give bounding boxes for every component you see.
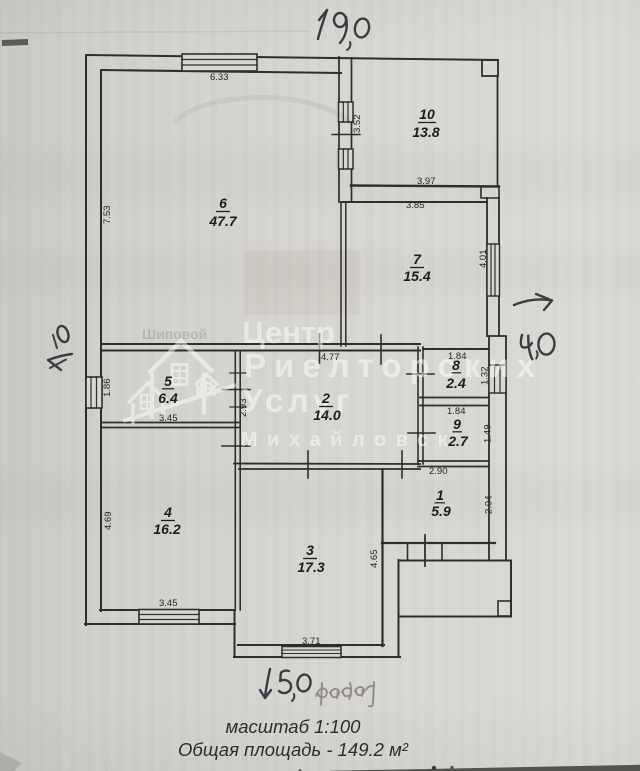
svg-text:2.90: 2.90 [429,466,448,477]
svg-text:3: 3 [306,542,314,558]
svg-text:10: 10 [419,106,435,122]
svg-text:47.7: 47.7 [208,213,237,229]
svg-text:Общая площадь - 149.2 м²: Общая площадь - 149.2 м² [178,739,409,760]
svg-text:2.93: 2.93 [238,399,249,418]
svg-text:4.77: 4.77 [321,352,340,363]
svg-text:1.49: 1.49 [483,425,494,444]
svg-text:3.71: 3.71 [302,636,321,647]
svg-text:2.04: 2.04 [484,496,495,515]
svg-text:2.4: 2.4 [445,375,466,391]
svg-text:15.4: 15.4 [403,268,430,284]
svg-text:1.32: 1.32 [480,367,491,386]
svg-text:4.65: 4.65 [369,550,380,569]
svg-text:7: 7 [413,251,422,267]
svg-text:масштаб 1:100: масштаб 1:100 [226,716,362,737]
svg-text:5: 5 [164,373,172,389]
svg-text:3.45: 3.45 [159,598,178,609]
svg-text:Риелторских: Риелторских [244,347,543,384]
svg-text:5.9: 5.9 [431,503,451,519]
svg-text:4: 4 [163,504,172,520]
svg-text:3.52: 3.52 [352,115,363,134]
svg-text:4.01: 4.01 [478,250,489,269]
svg-text:Центр: Центр [242,315,335,350]
svg-text:7.53: 7.53 [102,206,113,225]
svg-text:8: 8 [452,357,460,373]
svg-text:16.2: 16.2 [153,521,180,537]
svg-text:3.97: 3.97 [417,176,436,187]
svg-text:6: 6 [219,195,227,211]
svg-text:Михайловск: Михайловск [241,429,457,451]
svg-text:3.45: 3.45 [159,413,178,424]
svg-text:Шиповой: Шиповой [142,326,207,342]
svg-text:6.4: 6.4 [158,390,178,406]
svg-text:6.33: 6.33 [210,72,229,83]
svg-text:13.8: 13.8 [412,124,439,140]
svg-text:9: 9 [453,416,461,432]
svg-text:4.69: 4.69 [103,512,114,531]
svg-text:1.86: 1.86 [102,379,113,398]
svg-text:14.0: 14.0 [313,407,340,423]
svg-text:2: 2 [321,390,330,406]
svg-text:1: 1 [436,487,444,503]
svg-text:3.85: 3.85 [406,200,425,211]
svg-text:2.7: 2.7 [447,433,469,449]
svg-text:17.3: 17.3 [297,559,324,575]
